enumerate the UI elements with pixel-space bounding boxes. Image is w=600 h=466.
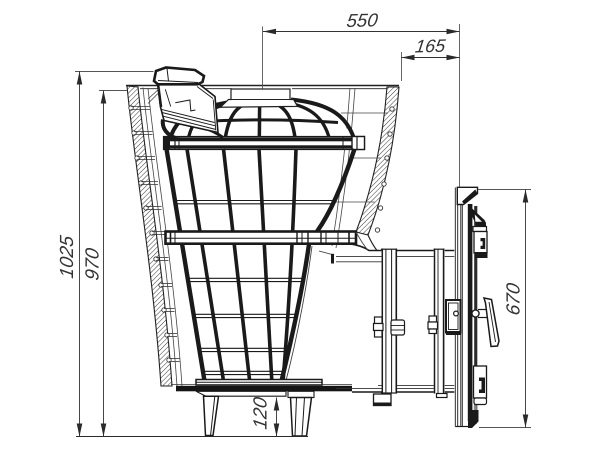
svg-text:550: 550	[345, 9, 379, 31]
svg-text:120: 120	[251, 395, 272, 430]
svg-text:670: 670	[504, 281, 525, 316]
svg-text:165: 165	[414, 36, 448, 57]
svg-text:970: 970	[83, 246, 104, 281]
svg-text:1025: 1025	[57, 234, 78, 280]
